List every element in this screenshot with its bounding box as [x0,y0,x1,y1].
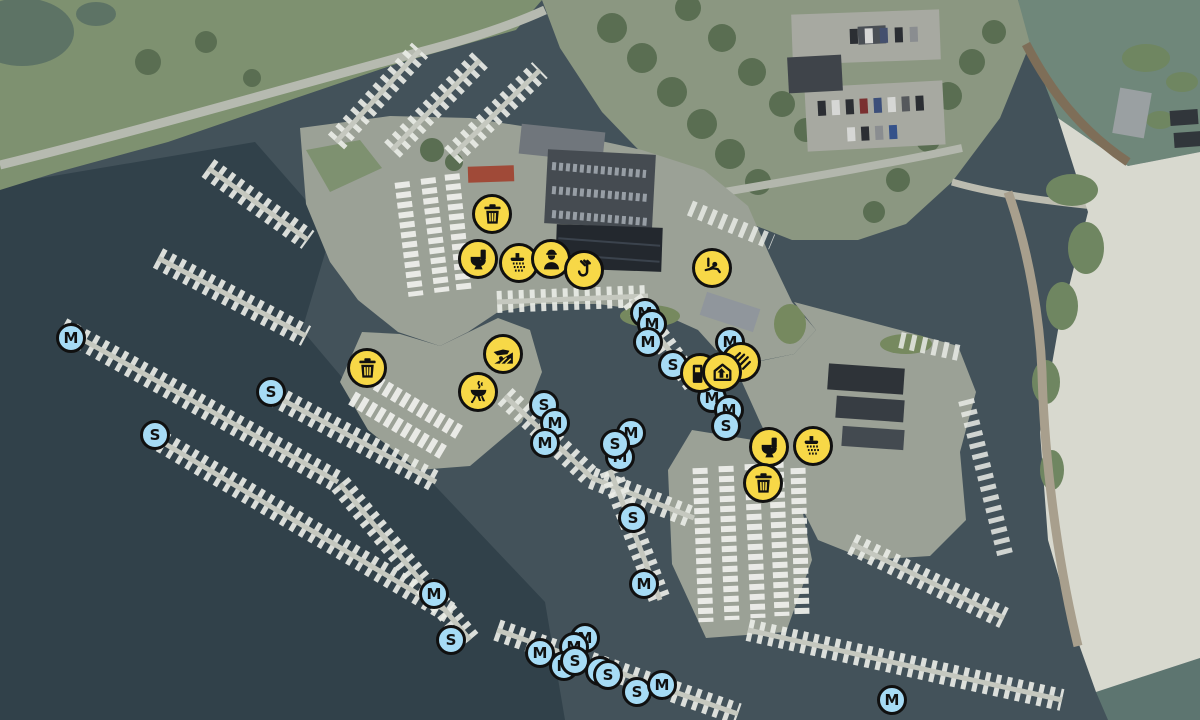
trash-marker[interactable] [743,463,783,503]
berth-marker-m[interactable]: M [56,323,86,353]
berth-marker-s[interactable]: S [600,429,630,459]
slipway-icon [491,342,516,367]
trash-icon [751,471,776,496]
toilet-marker[interactable] [458,239,498,279]
marker-letter: M [641,335,656,350]
berth-marker-m[interactable]: M [647,670,677,700]
marina-aerial-map[interactable]: MSSMMMSMMMSSMMMMSSMSMMMMMSSSSMM [0,0,1200,720]
berth-marker-m[interactable]: M [877,685,907,715]
berth-marker-m[interactable]: M [629,569,659,599]
staff-icon [539,247,564,272]
marker-letter: S [570,654,581,669]
trash-icon [480,202,505,227]
marker-letter: S [668,358,679,373]
marker-letter: M [427,587,442,602]
marker-letter: M [538,436,553,451]
crane-marker[interactable] [564,250,604,290]
crane-icon [572,258,597,283]
berth-marker-m[interactable]: M [633,327,663,357]
toilet-icon [466,247,491,272]
marker-letter: S [610,437,621,452]
marker-letter: S [446,633,457,648]
marker-letter: M [64,331,79,346]
toilet-icon [757,435,782,460]
berth-marker-s[interactable]: S [618,503,648,533]
marker-letter: S [628,511,639,526]
playground-icon [700,256,725,281]
trash-marker[interactable] [472,194,512,234]
marker-letter: S [266,385,277,400]
toilet-marker[interactable] [749,427,789,467]
bbq-marker[interactable] [458,372,498,412]
shower-icon [507,251,532,276]
boatyard-icon [710,360,735,385]
shower-marker[interactable] [793,426,833,466]
marker-letter: M [655,678,670,693]
marker-letter: S [721,419,732,434]
marker-letter: S [150,428,161,443]
berth-marker-s[interactable]: S [140,420,170,450]
marker-letter: S [632,685,643,700]
berth-marker-s[interactable]: S [256,377,286,407]
shower-icon [801,434,826,459]
slipway-marker[interactable] [483,334,523,374]
marker-letter: S [603,668,614,683]
berth-marker-s[interactable]: S [593,660,623,690]
bbq-icon [466,380,491,405]
berth-marker-m[interactable]: M [419,579,449,609]
berth-marker-s[interactable]: S [711,411,741,441]
trash-marker[interactable] [347,348,387,388]
boatyard-marker[interactable] [702,352,742,392]
trash-icon [355,356,380,381]
berth-marker-s[interactable]: S [436,625,466,655]
playground-marker[interactable] [692,248,732,288]
marker-letter: M [885,693,900,708]
berth-marker-m[interactable]: M [530,428,560,458]
marker-letter: M [533,646,548,661]
marker-layer: MSSMMMSMMMSSMMMMSSMSMMMMMSSSSMM [0,0,1200,720]
marker-letter: M [637,577,652,592]
